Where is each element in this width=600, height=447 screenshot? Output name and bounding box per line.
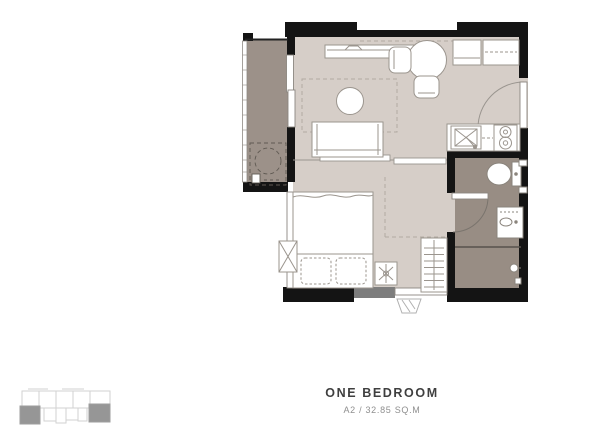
unit-type-title: ONE BEDROOM xyxy=(292,386,472,401)
wall-gray-segment xyxy=(354,287,395,298)
kitchen-sink-icon xyxy=(451,126,481,149)
floor-plan-page: ONE BEDROOM A2 / 32.85 SQ.M xyxy=(0,0,600,447)
wall-bathroom-left-upper xyxy=(447,151,455,193)
ceiling-fan-icon xyxy=(375,262,397,285)
wall-bedroom-bottom xyxy=(283,287,354,302)
toilet-icon xyxy=(487,162,521,186)
overhead-cabinets xyxy=(453,40,519,65)
stove-icon xyxy=(494,125,517,151)
keyplan-unit-highlight-left xyxy=(20,406,40,424)
floor-plan-drawing xyxy=(0,0,600,447)
wall-valve-mark-2 xyxy=(519,187,527,193)
wall-balcony-living-upper xyxy=(287,37,295,55)
balcony-sliding-door-panel-1 xyxy=(287,55,294,92)
balcony-floor xyxy=(247,40,288,192)
balcony-railing xyxy=(243,41,248,182)
wall-bathroom-top xyxy=(447,151,528,158)
balcony-drain-box xyxy=(252,174,260,183)
kitchen xyxy=(447,124,520,151)
wall-bathroom-bottom xyxy=(447,288,528,302)
key-plan xyxy=(20,389,110,424)
wall-top-left xyxy=(285,22,357,37)
unit-area-subtitle: A2 / 32.85 SQ.M xyxy=(292,404,472,417)
bathroom-door-leaf xyxy=(452,193,488,199)
wall-valve-mark-1 xyxy=(519,160,527,166)
wardrobe xyxy=(421,238,447,292)
dining-chair-bottom xyxy=(414,76,439,98)
partition-panel-2 xyxy=(394,158,446,164)
floor-drain-icon xyxy=(515,278,521,284)
ac-condenser-icon xyxy=(397,299,421,313)
vanity-sink-icon xyxy=(497,207,523,238)
bed xyxy=(293,192,373,288)
dining-table xyxy=(408,41,447,80)
title-block: ONE BEDROOM A2 / 32.85 SQ.M xyxy=(292,386,472,417)
coffee-table xyxy=(337,88,364,115)
keyplan-unit-highlight-right xyxy=(89,404,110,422)
wall-top-thin xyxy=(357,30,458,37)
wall-right-upper xyxy=(519,37,528,78)
wall-top-right xyxy=(457,22,528,37)
sofa xyxy=(312,122,383,157)
dining-chair-left xyxy=(389,47,411,73)
balcony-sliding-door-panel-2 xyxy=(288,90,295,127)
entrance-door-leaf xyxy=(520,82,527,128)
side-window xyxy=(279,241,297,272)
wall-balcony-living-lower xyxy=(287,127,295,182)
